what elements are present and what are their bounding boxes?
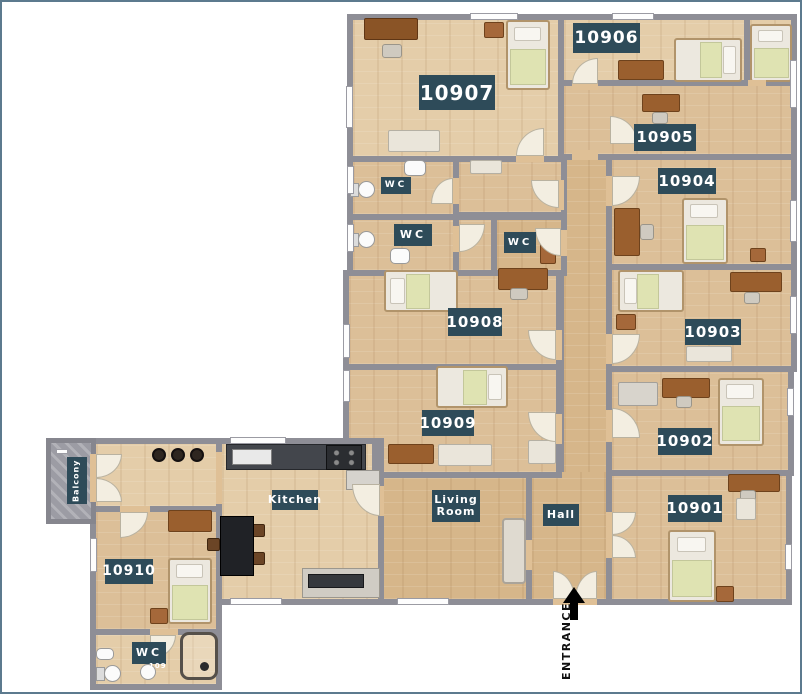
desk — [168, 510, 212, 532]
stove — [326, 445, 362, 470]
chair — [652, 112, 668, 124]
room-10908-label: 10908 — [448, 308, 502, 336]
room-10903-label: 10903 — [685, 319, 741, 345]
window — [787, 388, 794, 416]
cooktop — [308, 574, 364, 588]
chair — [744, 292, 760, 304]
nightstand — [716, 586, 734, 602]
wc1-label: WC — [381, 177, 411, 194]
sink — [96, 648, 114, 660]
window — [343, 324, 350, 358]
window — [230, 598, 282, 605]
door-gap-wc1 — [453, 178, 459, 204]
window — [790, 60, 797, 108]
shower — [180, 632, 218, 680]
window — [56, 449, 68, 454]
wc4-label: WC — [132, 642, 166, 664]
side-table — [484, 22, 504, 38]
door-gap-10906 — [572, 84, 598, 90]
room-10904-label: 10904 — [658, 168, 716, 194]
cabinet — [736, 498, 756, 520]
window — [790, 200, 797, 242]
bed — [506, 20, 550, 90]
kitchen-sink — [232, 449, 272, 465]
desk — [642, 94, 680, 112]
window — [612, 13, 654, 20]
door-gap-10905-nook — [748, 80, 766, 86]
bed — [750, 24, 792, 82]
window — [790, 296, 797, 334]
desk — [614, 208, 640, 256]
bar-stool — [190, 448, 204, 462]
wardrobe — [364, 18, 418, 40]
door-gap-10908 — [556, 330, 562, 360]
room-10909-label: 10909 — [422, 410, 474, 436]
door-gap-wc3 — [561, 230, 567, 256]
window — [90, 538, 97, 572]
window — [347, 166, 354, 194]
window — [230, 437, 286, 444]
nightstand — [750, 248, 766, 262]
door-gap-10907 — [516, 156, 544, 162]
window — [346, 86, 353, 128]
kitchen-label: Kitchen — [272, 490, 318, 510]
desk — [730, 272, 782, 292]
bed — [682, 198, 728, 264]
wc4-number: 109 — [149, 662, 167, 670]
hall-cabinet — [528, 440, 556, 464]
room-10907-label: 10907 — [419, 75, 495, 110]
desk — [388, 444, 434, 464]
desk — [498, 268, 548, 290]
nightstand — [150, 608, 168, 624]
bed — [436, 366, 508, 408]
window — [470, 13, 518, 20]
nightstand — [616, 314, 636, 330]
shoe-cabinet — [470, 160, 502, 174]
window — [347, 224, 354, 252]
window — [785, 544, 792, 570]
floor-plan: 10907 10906 10905 10904 10903 10902 1090… — [0, 0, 802, 694]
window — [343, 370, 350, 402]
bar-stool — [171, 448, 185, 462]
bar-stool — [152, 448, 166, 462]
bed — [718, 378, 764, 446]
bed — [618, 270, 684, 312]
sofa-bench — [438, 444, 492, 466]
room-10902-label: 10902 — [658, 428, 712, 455]
dining-table — [220, 516, 254, 576]
room-10901-label: 10901 — [668, 495, 722, 522]
dining-chair — [207, 538, 220, 551]
room-10906-label: 10906 — [573, 23, 640, 53]
chair — [676, 396, 692, 408]
bed — [384, 270, 458, 312]
desk — [662, 378, 710, 398]
door-gap-nook-hall — [572, 150, 598, 160]
entrance-arrow-icon — [563, 587, 585, 603]
sink — [404, 160, 426, 176]
cabinet — [618, 382, 658, 406]
door-gap-dining-kitchen — [216, 452, 222, 504]
entrance-label: ENTRANCE — [560, 624, 573, 680]
door-gap-living-hall — [526, 540, 532, 570]
wc3-label: WC — [504, 232, 536, 253]
bed — [168, 558, 212, 624]
hall-label: Hall — [543, 504, 579, 526]
sofa — [502, 518, 526, 584]
bed — [668, 530, 716, 602]
bed — [674, 38, 742, 82]
dresser — [388, 130, 440, 152]
window — [397, 598, 449, 605]
chair — [640, 224, 654, 240]
balcony-label: Balcony — [67, 457, 87, 504]
sink — [390, 248, 410, 264]
living-room-label: Living Room — [432, 490, 480, 522]
toilet — [96, 664, 120, 682]
chair — [382, 44, 402, 58]
wc2-label: WC — [394, 224, 432, 246]
chair — [510, 288, 528, 300]
desk — [618, 60, 664, 80]
dresser — [686, 346, 732, 362]
room-10905-label: 10905 — [634, 124, 696, 151]
room-10910-label: 10910 — [105, 559, 153, 584]
door-gap-10909 — [556, 414, 562, 444]
